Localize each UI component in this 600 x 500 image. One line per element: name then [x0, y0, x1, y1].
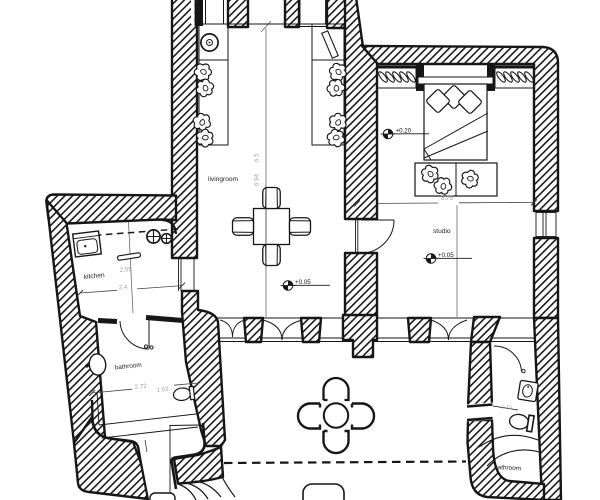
svg-text:+0.05: +0.05: [295, 279, 311, 286]
svg-text:bathroom: bathroom: [494, 464, 521, 472]
svg-text:2.72: 2.72: [134, 383, 147, 391]
svg-text:2.4: 2.4: [119, 284, 129, 292]
svg-text:studio: studio: [433, 228, 451, 235]
svg-text:livingroom: livingroom: [208, 176, 239, 183]
svg-text:5.75: 5.75: [441, 195, 454, 202]
svg-text:2.55: 2.55: [120, 266, 133, 274]
svg-text:+0.20: +0.20: [396, 128, 412, 135]
svg-text:1.52: 1.52: [156, 386, 169, 394]
svg-text:6.5: 6.5: [254, 153, 261, 162]
svg-text:+0.05: +0.05: [438, 252, 454, 259]
svg-text:6.94: 6.94: [254, 173, 261, 186]
